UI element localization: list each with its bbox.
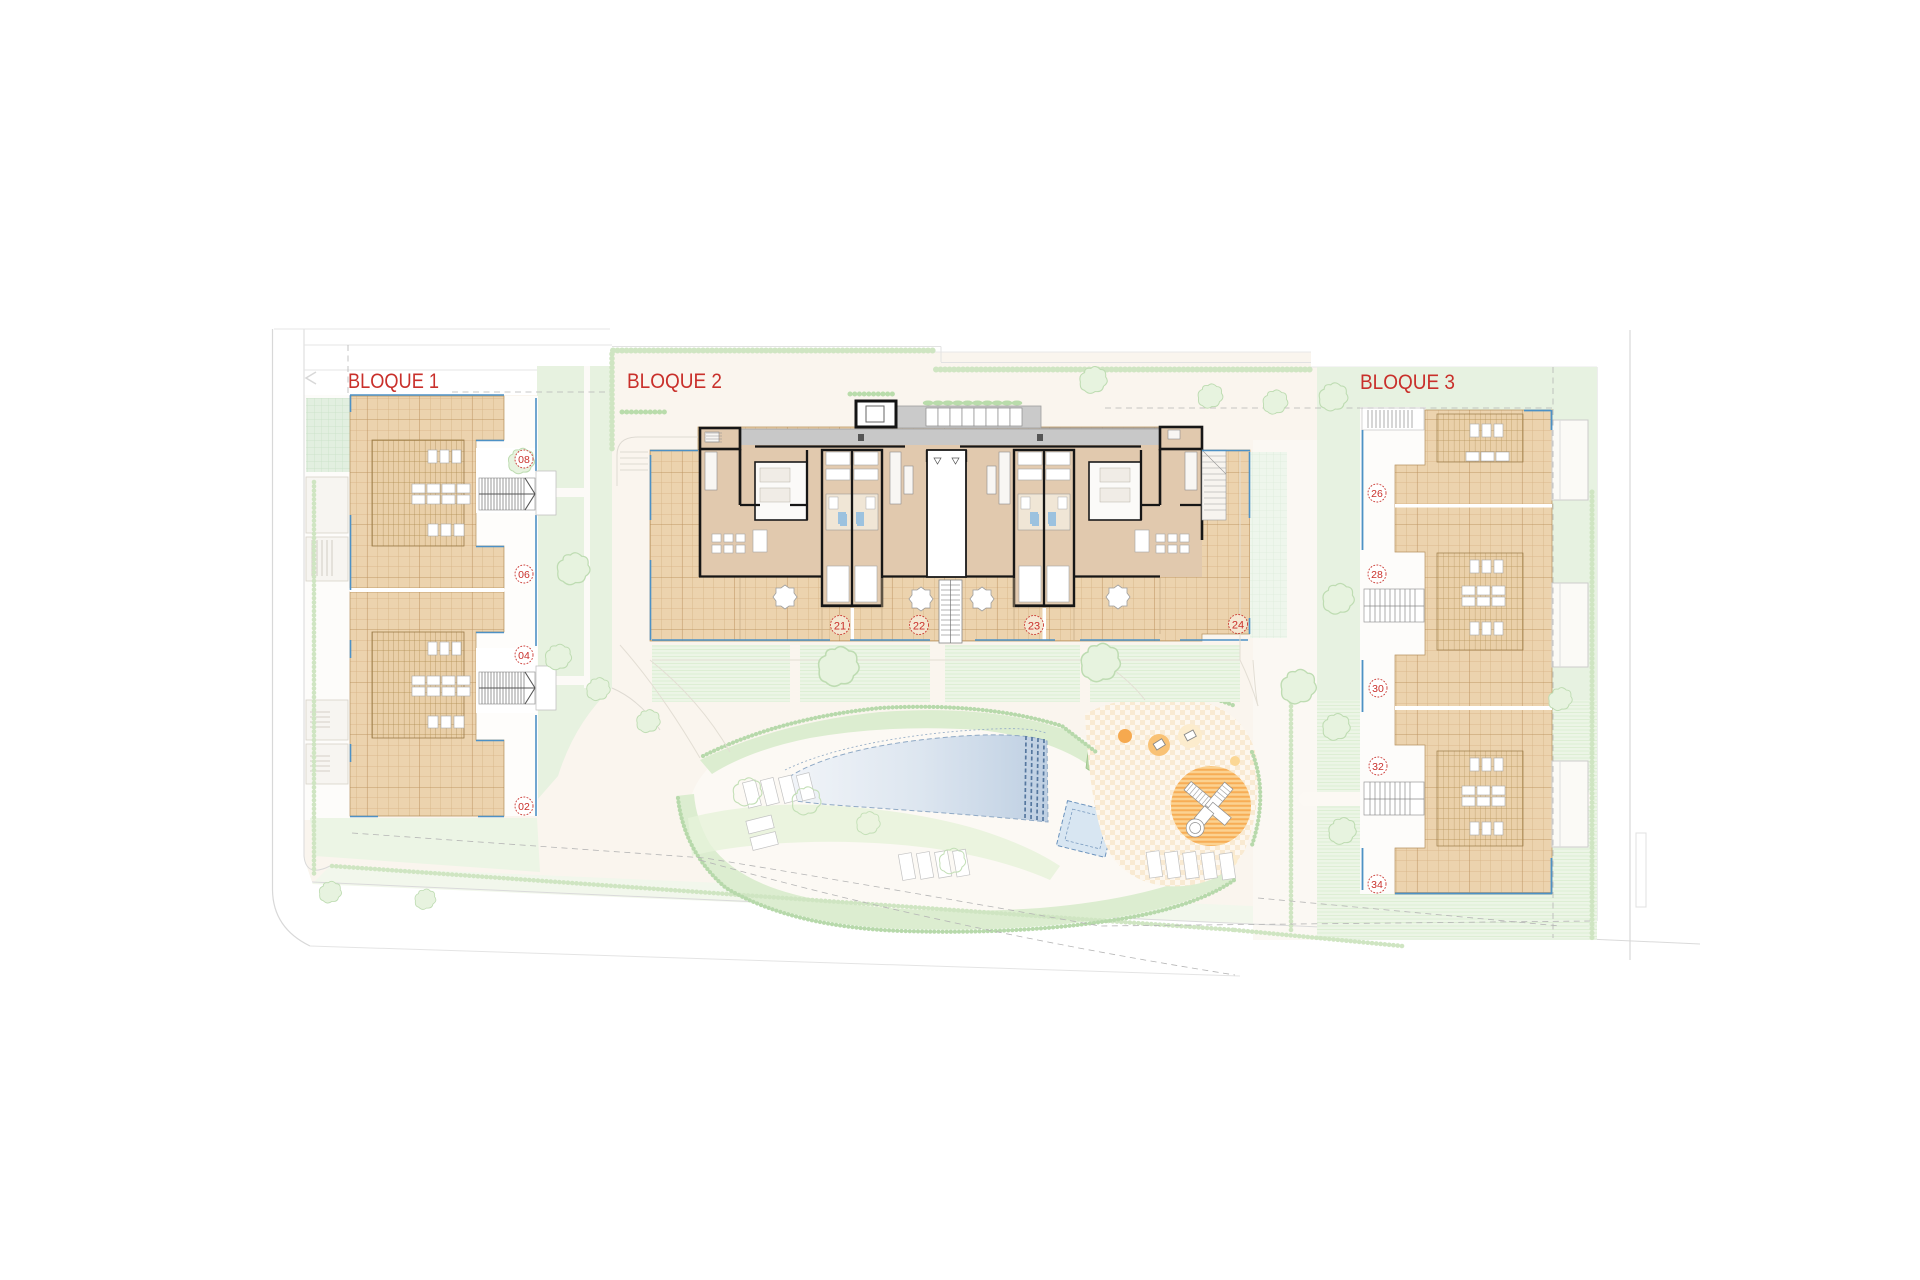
svg-text:22: 22 bbox=[913, 620, 925, 632]
svg-text:34: 34 bbox=[1371, 879, 1383, 891]
svg-text:24: 24 bbox=[1232, 619, 1244, 631]
svg-text:04: 04 bbox=[518, 650, 530, 662]
svg-text:23: 23 bbox=[1028, 620, 1040, 632]
svg-text:BLOQUE 1: BLOQUE 1 bbox=[348, 369, 439, 393]
svg-text:08: 08 bbox=[518, 454, 530, 466]
svg-text:21: 21 bbox=[834, 620, 846, 632]
svg-text:28: 28 bbox=[1371, 569, 1383, 581]
svg-text:30: 30 bbox=[1372, 683, 1384, 695]
svg-text:02: 02 bbox=[518, 801, 530, 813]
svg-text:26: 26 bbox=[1371, 488, 1383, 500]
svg-text:32: 32 bbox=[1372, 761, 1384, 773]
svg-text:BLOQUE 2: BLOQUE 2 bbox=[627, 369, 722, 393]
svg-text:BLOQUE 3: BLOQUE 3 bbox=[1360, 370, 1455, 394]
svg-text:06: 06 bbox=[518, 569, 530, 581]
